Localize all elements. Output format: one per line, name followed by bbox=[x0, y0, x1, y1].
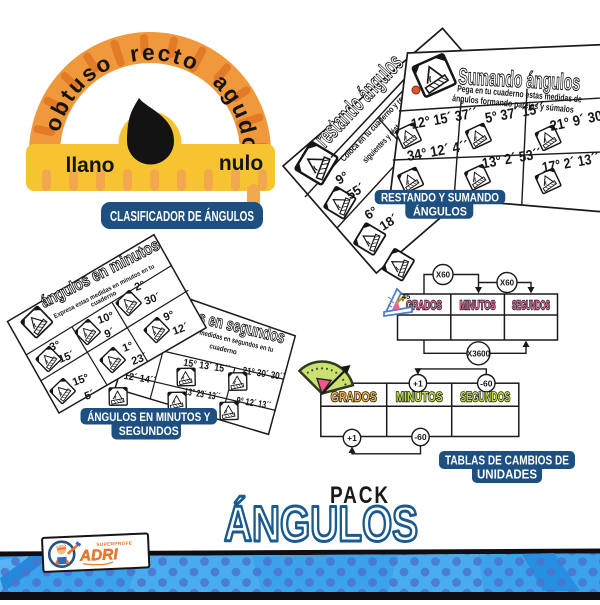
svg-text:MINUTOS: MINUTOS bbox=[396, 390, 443, 405]
svg-text:TABLAS DE CAMBIOS DE: TABLAS DE CAMBIOS DE bbox=[445, 454, 569, 468]
svg-text:RESTANDO Y SUMANDO: RESTANDO Y SUMANDO bbox=[381, 192, 499, 204]
svg-text:GRADOS: GRADOS bbox=[331, 390, 377, 405]
svg-text:X60: X60 bbox=[500, 279, 515, 288]
svg-text:-60: -60 bbox=[480, 378, 493, 388]
svg-text:nulo: nulo bbox=[219, 152, 263, 175]
svg-text:+1: +1 bbox=[347, 433, 357, 443]
svg-text:X60: X60 bbox=[436, 271, 451, 280]
svg-text:UNIDADES: UNIDADES bbox=[477, 468, 537, 482]
svg-text:SEGUNDOS: SEGUNDOS bbox=[119, 424, 179, 438]
svg-text:SEGUNDOS: SEGUNDOS bbox=[512, 299, 550, 313]
svg-text:ÁNGULOS: ÁNGULOS bbox=[224, 496, 418, 552]
svg-text:SEGUNDOS: SEGUNDOS bbox=[460, 390, 510, 405]
svg-text:MINUTOS: MINUTOS bbox=[460, 299, 496, 313]
svg-text:+1: +1 bbox=[413, 378, 423, 388]
svg-text:X3600: X3600 bbox=[467, 350, 491, 359]
svg-text:ÁNGULOS: ÁNGULOS bbox=[413, 206, 467, 219]
svg-text:-60: -60 bbox=[414, 432, 427, 442]
svg-text:CLASIFICADOR DE ÁNGULOS: CLASIFICADOR DE ÁNGULOS bbox=[110, 208, 254, 225]
svg-text:llano: llano bbox=[65, 154, 114, 177]
svg-text:45: 45 bbox=[402, 292, 410, 301]
svg-text:ÁNGULOS EN MINUTOS Y: ÁNGULOS EN MINUTOS Y bbox=[87, 409, 210, 424]
